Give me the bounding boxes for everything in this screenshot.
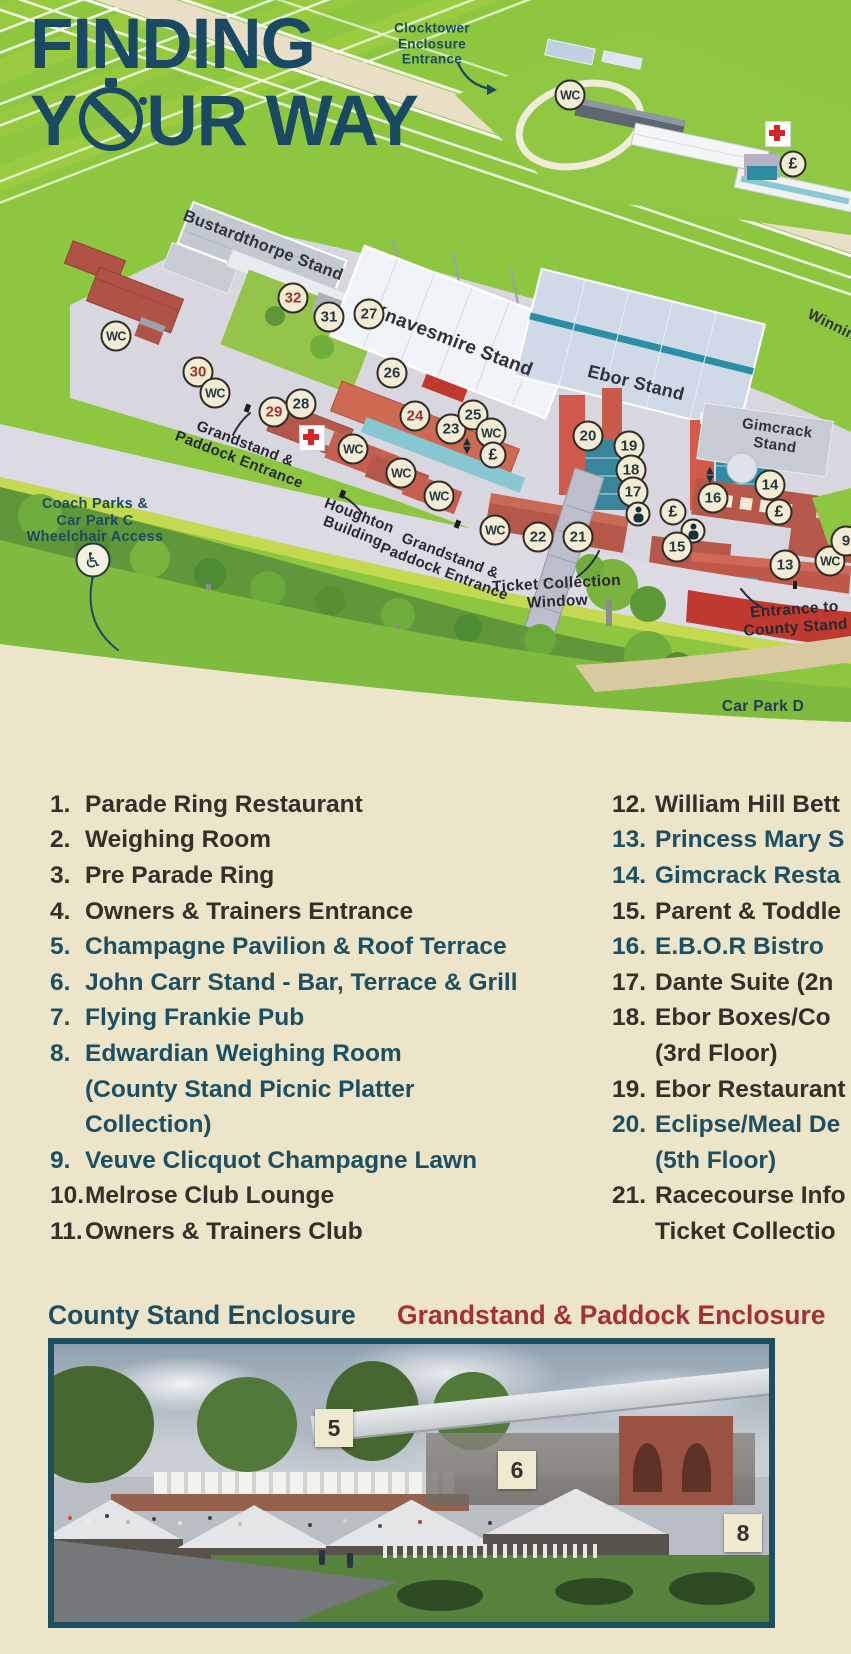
map-label-clocktower-enclosure-entrance: ClocktowerEnclosureEntrance bbox=[394, 21, 470, 68]
map-marker-26: 26 bbox=[377, 358, 408, 389]
wheelchair-access-icon: ♿ bbox=[76, 543, 111, 578]
map-marker-14: 14 bbox=[755, 470, 786, 501]
finding-your-way-page: { "title": {"line1": "FINDING", "line2_p… bbox=[0, 0, 851, 1654]
legend-item: 10.Melrose Club Lounge bbox=[50, 1179, 610, 1215]
map-marker-20: 20 bbox=[573, 421, 604, 452]
legend-item: 9.Veuve Clicquot Champagne Lawn bbox=[50, 1143, 610, 1179]
photo-marker-5: 5 bbox=[315, 1409, 353, 1447]
legend-item: 3.Pre Parade Ring bbox=[50, 858, 610, 894]
pound-icon: £ bbox=[766, 499, 793, 526]
legend-item: 12.William Hill Bett bbox=[612, 787, 851, 823]
legend-item: 6.John Carr Stand - Bar, Terrace & Grill bbox=[50, 965, 610, 1001]
legend-item: 8.Edwardian Weighing Room bbox=[50, 1036, 610, 1072]
first-aid-icon bbox=[299, 425, 325, 451]
title-line-1: FINDING bbox=[30, 6, 418, 83]
compass-icon bbox=[79, 87, 143, 151]
map-marker-28: 28 bbox=[286, 389, 317, 420]
photo-tree bbox=[197, 1377, 297, 1472]
photo-hedge bbox=[555, 1578, 634, 1606]
legend-item: 7.Flying Frankie Pub bbox=[50, 1001, 610, 1037]
photo-hedge bbox=[397, 1580, 483, 1611]
legend-item: 18.Ebor Boxes/Co bbox=[612, 1001, 851, 1037]
photo-person bbox=[347, 1553, 353, 1568]
grandstand-paddock-enclosure-header: Grandstand & Paddock Enclosure bbox=[397, 1300, 826, 1331]
legend-item: 5.Champagne Pavilion & Roof Terrace bbox=[50, 929, 610, 965]
legend-item: 11.Owners & Trainers Club bbox=[50, 1214, 610, 1250]
legend-item: (3rd Floor) bbox=[612, 1036, 851, 1072]
enclosure-photo: 568 bbox=[48, 1338, 775, 1628]
legend-item: (5th Floor) bbox=[612, 1143, 851, 1179]
wc-icon: WC bbox=[424, 481, 455, 512]
photo-marker-8: 8 bbox=[724, 1514, 762, 1552]
lift-icon bbox=[463, 437, 471, 455]
legend-item: (County Stand Picnic Platter bbox=[50, 1072, 610, 1108]
legend-item: 17.Dante Suite (2n bbox=[612, 965, 851, 1001]
map-label-entrance-to-county-stand: Entrance toCounty Stand bbox=[742, 598, 849, 641]
title-line-2: YUR WAY bbox=[30, 83, 418, 160]
legend-item: 20.Eclipse/Meal De bbox=[612, 1107, 851, 1143]
photo-white-fence bbox=[383, 1544, 598, 1558]
map-marker-32: 32 bbox=[278, 283, 309, 314]
map-marker-16: 16 bbox=[698, 483, 729, 514]
legend-column-left: 1.Parade Ring Restaurant2.Weighing Room3… bbox=[50, 787, 610, 1250]
legend-item: 16.E.B.O.R Bistro bbox=[612, 929, 851, 965]
wc-icon: WC bbox=[101, 321, 132, 352]
page-title: FINDING YUR WAY bbox=[30, 6, 418, 160]
map-marker-22: 22 bbox=[523, 522, 554, 553]
legend-item: 21.Racecourse Info bbox=[612, 1179, 851, 1215]
photo-hedge bbox=[669, 1572, 755, 1605]
wc-icon: WC bbox=[200, 378, 231, 409]
legend-item: 1.Parade Ring Restaurant bbox=[50, 787, 610, 823]
wc-icon: WC bbox=[338, 434, 369, 465]
pound-icon: £ bbox=[780, 151, 807, 178]
legend-item: 13.Princess Mary S bbox=[612, 823, 851, 859]
county-stand-enclosure-header: County Stand Enclosure bbox=[48, 1300, 356, 1331]
photo-person bbox=[319, 1550, 325, 1565]
first-aid-icon bbox=[765, 121, 791, 147]
legend-item: 4.Owners & Trainers Entrance bbox=[50, 894, 610, 930]
map-marker-27: 27 bbox=[354, 299, 385, 330]
legend-item: 19.Ebor Restaurant bbox=[612, 1072, 851, 1108]
map-label-coach-parks: Coach Parks &Car Park CWheelchair Access bbox=[27, 496, 164, 546]
pound-icon: £ bbox=[480, 442, 507, 469]
pound-icon: £ bbox=[660, 499, 687, 526]
map-marker-13: 13 bbox=[770, 550, 801, 581]
lift-icon bbox=[706, 466, 714, 484]
map-marker-15: 15 bbox=[662, 532, 693, 563]
racecourse-map: FINDING YUR WAY ClocktowerEnclosureEntra… bbox=[0, 0, 851, 745]
legend-item: Collection) bbox=[50, 1107, 610, 1143]
wc-icon: WC bbox=[386, 458, 417, 489]
baby-facilities-icon bbox=[626, 502, 651, 527]
map-label-ticket-collection-window: Ticket CollectionWindow bbox=[492, 572, 623, 614]
wc-icon: WC bbox=[480, 515, 511, 546]
legend-item: 15.Parent & Toddle bbox=[612, 894, 851, 930]
map-marker-21: 21 bbox=[563, 522, 594, 553]
wc-icon: WC bbox=[555, 80, 586, 111]
map-label-car-park-d: Car Park D bbox=[722, 698, 804, 716]
legend-item: 2.Weighing Room bbox=[50, 823, 610, 859]
legend-item: 14.Gimcrack Resta bbox=[612, 858, 851, 894]
map-marker-31: 31 bbox=[314, 302, 345, 333]
legend-column-right: 12.William Hill Bett13.Princess Mary S14… bbox=[612, 787, 851, 1250]
legend-item: Ticket Collectio bbox=[612, 1214, 851, 1250]
photo-marker-6: 6 bbox=[498, 1451, 536, 1489]
map-marker-24: 24 bbox=[400, 401, 431, 432]
